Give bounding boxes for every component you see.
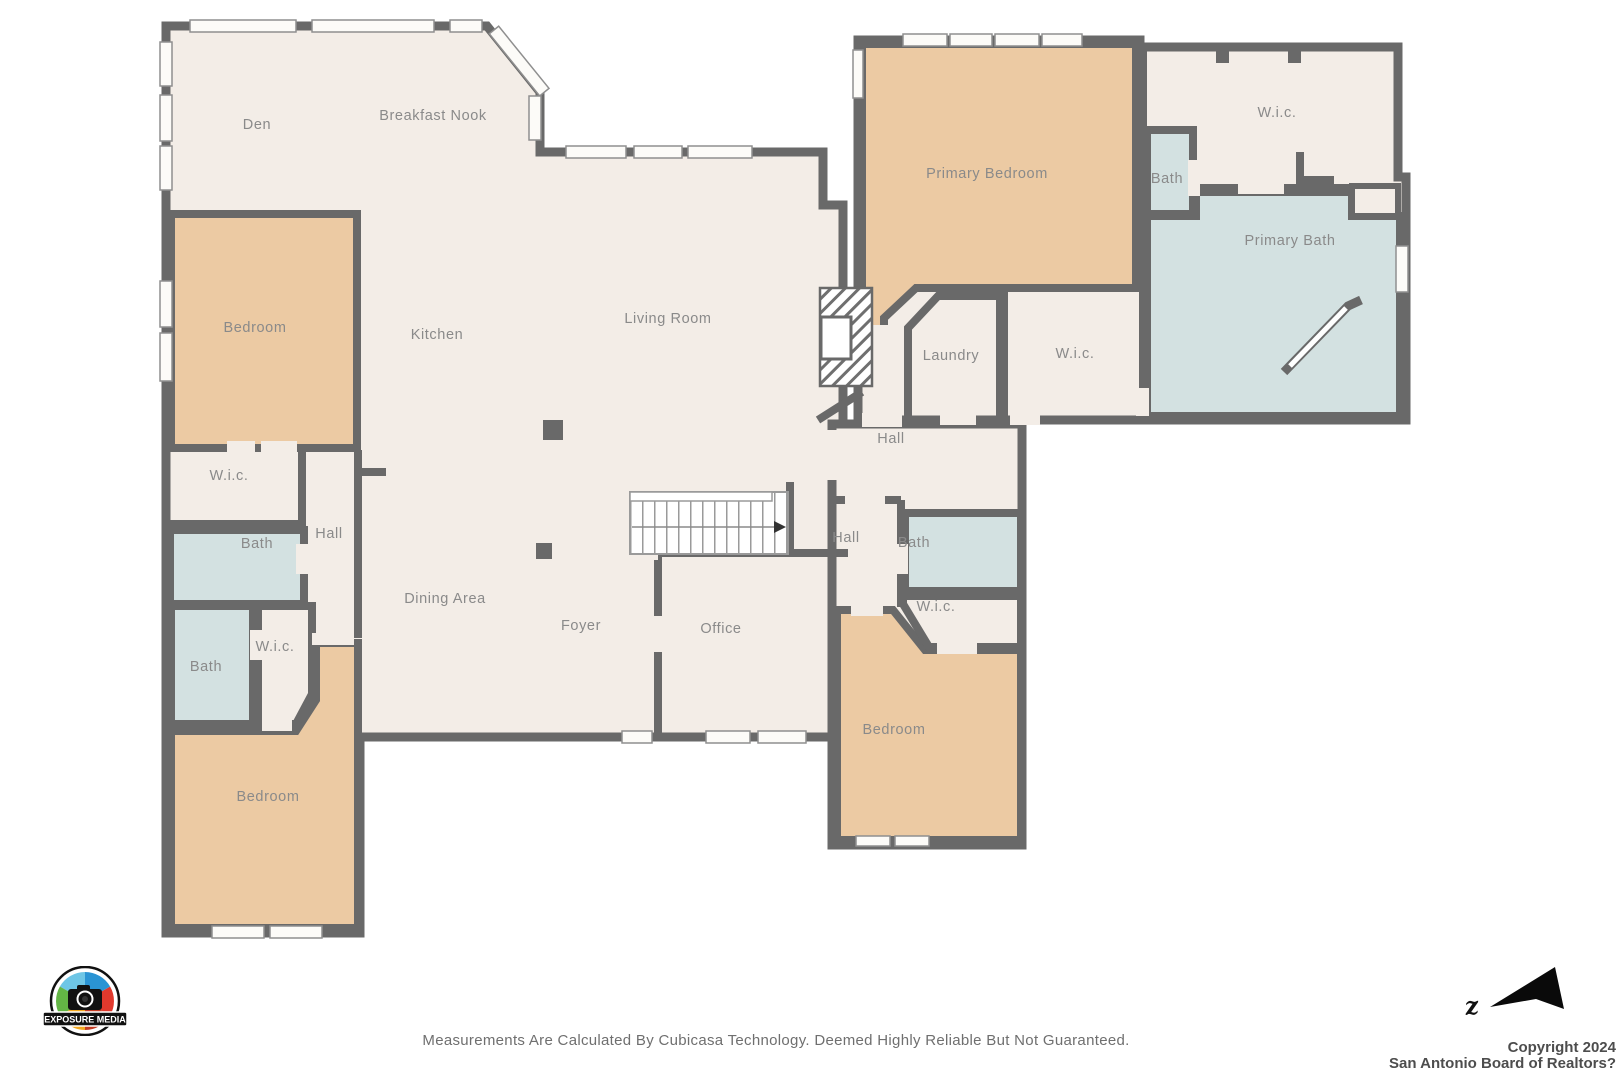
- window: [160, 95, 172, 141]
- door-opening: [845, 492, 885, 506]
- door-opening: [1188, 160, 1200, 196]
- room-primary-bedroom: [862, 44, 1136, 332]
- room-label-bedroom-upper-left: Bedroom: [223, 320, 286, 336]
- door-opening: [1010, 411, 1040, 425]
- door-opening: [227, 441, 255, 454]
- door-opening: [862, 413, 902, 427]
- door-opening: [1238, 181, 1284, 194]
- room-label-den: Den: [243, 117, 271, 133]
- room-label-hall-right-upper: Hall: [877, 431, 904, 447]
- window: [529, 96, 541, 140]
- wall-stub: [1288, 43, 1301, 63]
- window: [758, 731, 806, 743]
- floor-plan-drawing: Den Breakfast Nook Bedroom Kitchen Livin…: [0, 0, 1620, 1080]
- window: [160, 281, 172, 327]
- room-label-living-room: Living Room: [624, 311, 711, 327]
- room-label-wic-mid: W.i.c.: [1055, 346, 1094, 362]
- room-wic-left-2: [258, 606, 312, 724]
- window: [903, 34, 947, 46]
- window: [1042, 34, 1082, 46]
- room-label-breakfast-nook: Breakfast Nook: [379, 108, 487, 124]
- primary-bath-niche: [1352, 186, 1398, 216]
- window: [706, 731, 750, 743]
- door-opening: [312, 633, 354, 645]
- window: [566, 146, 626, 158]
- door-opening: [937, 641, 977, 654]
- fireplace: [820, 288, 872, 386]
- window: [212, 926, 264, 938]
- column: [536, 543, 552, 559]
- compass-label: z: [1462, 990, 1482, 1021]
- room-label-bath-left-2: Bath: [190, 659, 222, 675]
- room-label-office: Office: [700, 621, 741, 637]
- room-label-primary-bath: Primary Bath: [1245, 233, 1336, 249]
- window: [270, 926, 322, 938]
- wall-stub: [1216, 43, 1229, 63]
- room-label-dining-area: Dining Area: [404, 591, 486, 607]
- window: [856, 836, 890, 846]
- room-label-wic-left-2: W.i.c.: [255, 639, 294, 655]
- window: [634, 146, 682, 158]
- door-opening: [652, 616, 664, 652]
- window: [160, 146, 172, 190]
- window: [853, 50, 863, 98]
- room-label-wic-left-1: W.i.c.: [209, 468, 248, 484]
- window: [312, 20, 434, 32]
- door-opening: [262, 719, 292, 731]
- door-opening: [296, 544, 310, 574]
- door-opening: [797, 430, 841, 480]
- room-label-hall-left: Hall: [315, 526, 342, 542]
- copyright-line-2: San Antonio Board of Realtors?: [1389, 1056, 1616, 1072]
- room-label-wic-primary: W.i.c.: [1257, 105, 1296, 121]
- room-label-bedroom-lower-left: Bedroom: [236, 789, 299, 805]
- disclaimer-text: Measurements Are Calculated By Cubicasa …: [0, 1032, 1552, 1049]
- window: [622, 731, 652, 743]
- room-label-bath-left-1: Bath: [241, 536, 273, 552]
- window: [160, 42, 172, 86]
- exposure-media-logo: EXPOSURE MEDIA: [42, 966, 128, 1041]
- door-opening: [940, 411, 976, 425]
- logo-text: EXPOSURE MEDIA: [44, 1015, 126, 1025]
- staircase: [630, 492, 788, 554]
- window: [160, 333, 172, 381]
- window: [950, 34, 992, 46]
- room-label-foyer: Foyer: [561, 618, 601, 634]
- logo-graphic: EXPOSURE MEDIA: [42, 966, 128, 1036]
- room-label-bath-primary-hall: Bath: [1151, 171, 1183, 187]
- copyright-line-1: Copyright 2024: [1389, 1040, 1616, 1056]
- window: [190, 20, 296, 32]
- north-arrow-icon: z: [1448, 957, 1618, 1032]
- column: [543, 420, 563, 440]
- room-label-laundry: Laundry: [923, 348, 980, 364]
- room-label-bath-lower-right: Bath: [898, 535, 930, 551]
- room-bath-lower-right: [905, 513, 1021, 591]
- room-label-primary-bedroom: Primary Bedroom: [926, 166, 1048, 182]
- room-label-hall-lower-right: Hall: [832, 530, 859, 546]
- room-label-kitchen: Kitchen: [411, 327, 464, 343]
- window: [995, 34, 1039, 46]
- window: [450, 20, 482, 32]
- stair-rail: [630, 492, 772, 501]
- door-opening: [1136, 388, 1149, 416]
- copyright-watermark: Copyright 2024 San Antonio Board of Real…: [1389, 1040, 1616, 1072]
- floor-plan-page: Den Breakfast Nook Bedroom Kitchen Livin…: [0, 0, 1620, 1080]
- door-opening: [261, 441, 297, 454]
- room-label-bedroom-lower-right: Bedroom: [862, 722, 925, 738]
- window: [895, 836, 929, 846]
- room-label-wic-lower-right: W.i.c.: [916, 599, 955, 615]
- compass: z: [1448, 957, 1618, 1037]
- window: [1396, 246, 1408, 292]
- fireplace-firebox: [821, 317, 851, 359]
- door-opening: [851, 603, 883, 616]
- window: [688, 146, 752, 158]
- room-bath-left-1: [170, 530, 304, 604]
